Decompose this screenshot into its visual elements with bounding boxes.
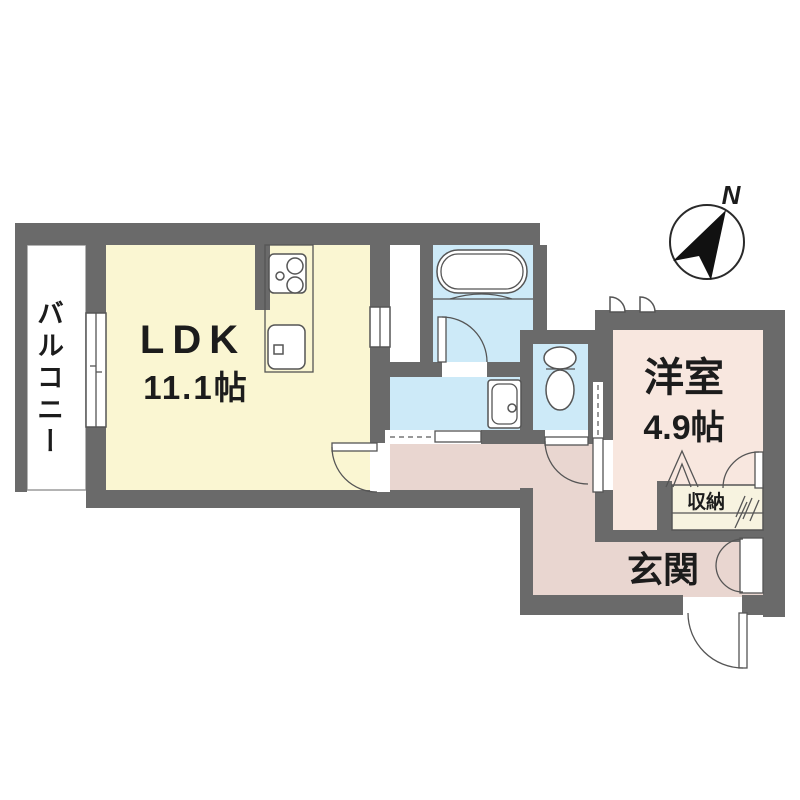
bathroom-door-opening [442, 362, 487, 377]
floor-plan-svg: N LDK 11.1帖 洋室 4.9帖 収納 玄関 [0, 0, 800, 800]
storage-label: 収納 [687, 490, 725, 513]
room-corridor [390, 444, 595, 490]
room-bedroom-nook [613, 487, 657, 532]
ldk-size-label: 11.1帖 [143, 369, 248, 406]
entrance-door [688, 613, 747, 668]
toilet [544, 347, 576, 410]
compass: N [670, 180, 744, 280]
entrance-label: 玄関 [627, 549, 699, 590]
kitchen-sink [268, 325, 305, 369]
entrance-threshold [683, 598, 742, 613]
washroom-sliding-door [385, 430, 481, 444]
balcony-window [86, 313, 106, 427]
bedroom-label: 洋室 [644, 356, 724, 400]
ldk-label: LDK [140, 318, 246, 362]
floor-plan: N LDK 11.1帖 洋室 4.9帖 収納 玄関 バルコニー [0, 0, 800, 800]
stove [269, 254, 306, 293]
room-ldk [106, 245, 370, 490]
room-corridor-turn [533, 488, 595, 535]
ldk-side-window [370, 307, 390, 347]
bedroom-casement-windows [610, 297, 655, 312]
washbasin [488, 380, 521, 428]
compass-north-label: N [722, 180, 742, 210]
balcony-label: バルコニー [34, 284, 68, 474]
bedroom-size-label: 4.9帖 [643, 409, 724, 447]
kitchen-partition-wall [255, 245, 270, 310]
